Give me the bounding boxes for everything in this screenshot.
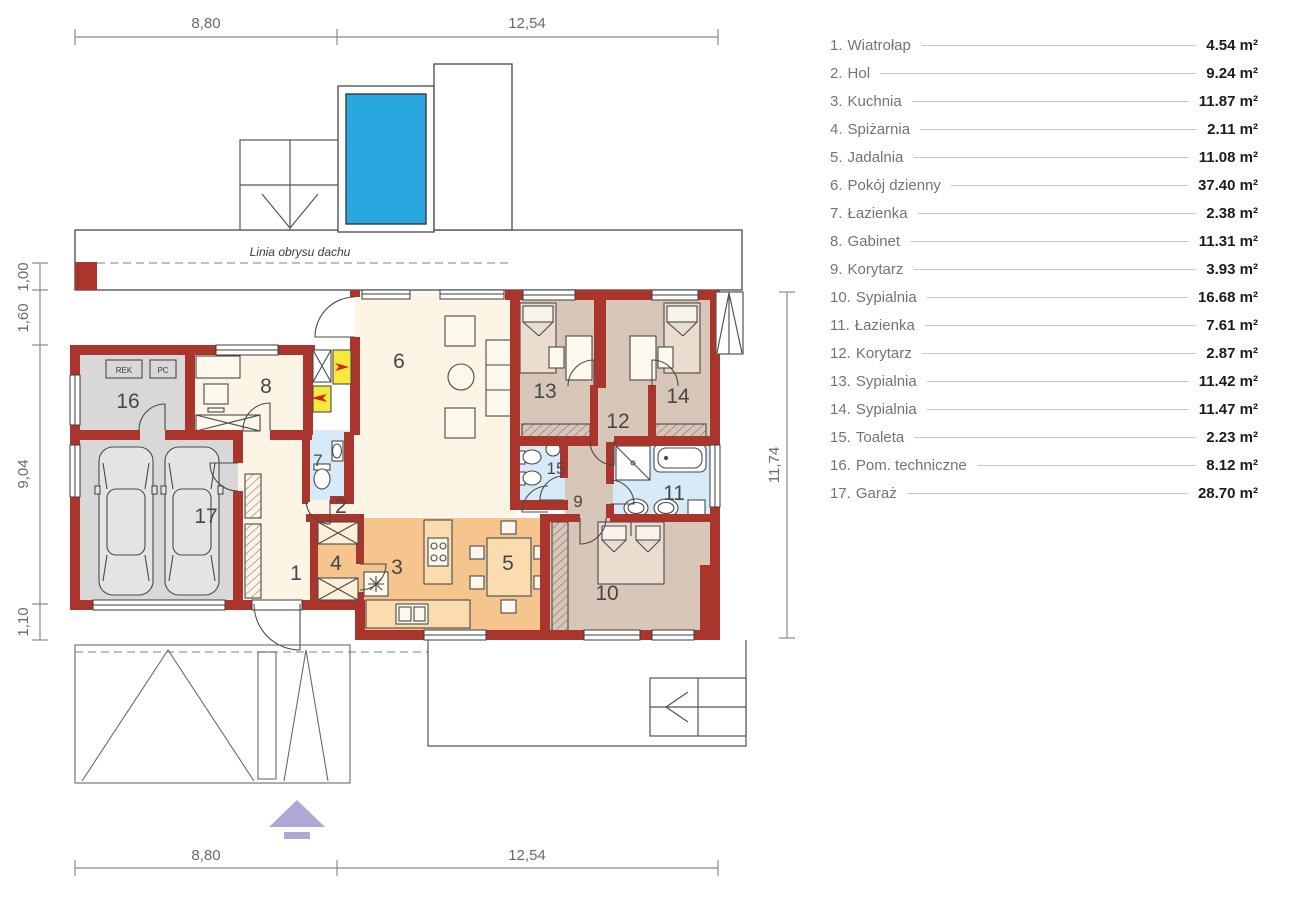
window-icon [216, 345, 278, 355]
legend-room-area: 2.87 m² [1206, 345, 1258, 362]
washer-icon [688, 500, 705, 515]
legend-room-name: Sypialnia [856, 289, 917, 306]
legend-room-name: Korytarz [848, 261, 904, 278]
legend-room-area: 11.42 m² [1199, 373, 1258, 390]
legend-row: 10.Sypialnia16.68 m² [830, 283, 1258, 311]
legend-room-area: 4.54 m² [1206, 37, 1258, 54]
legend-room-area: 9.24 m² [1206, 65, 1258, 82]
legend-room-name: Sypialnia [856, 373, 917, 390]
legend-room-name: Wiatrołap [848, 37, 911, 54]
legend-room-number: 3. [830, 93, 843, 110]
svg-text:PC: PC [157, 366, 168, 375]
legend-row: 16.Pom. techniczne8.12 m² [830, 451, 1258, 479]
dimension-bottom: 8,80 12,54 [75, 847, 718, 876]
floor-plan-page: 8,80 12,54 8,80 12,54 1,00 1,60 9,04 1,1… [0, 0, 1300, 900]
legend-row: 9.Korytarz3.93 m² [830, 255, 1258, 283]
legend-room-name: Jadalnia [848, 149, 904, 166]
legend-row: 12.Korytarz2.87 m² [830, 339, 1258, 367]
legend-room-area: 11.47 m² [1199, 401, 1258, 418]
window-icon [652, 290, 698, 300]
legend-room-area: 2.11 m² [1207, 121, 1258, 138]
car-icon [95, 447, 157, 595]
legend-leader-line [927, 297, 1188, 298]
legend-room-number: 6. [830, 177, 843, 194]
room-label-2: 2 [335, 495, 347, 518]
legend-room-name: Hol [848, 65, 871, 82]
legend-room-name: Łazienka [855, 317, 915, 334]
dim-bottom-left: 8,80 [191, 847, 220, 864]
legend-room-number: 5. [830, 149, 843, 166]
legend-leader-line [910, 241, 1189, 242]
legend-row: 15.Toaleta2.23 m² [830, 423, 1258, 451]
room-label-7: 7 [313, 451, 322, 470]
legend-room-area: 7.61 m² [1206, 317, 1258, 334]
legend-room-number: 14. [830, 401, 851, 418]
legend-room-name: Pokój dzienny [848, 177, 941, 194]
legend-leader-line [922, 353, 1197, 354]
room-label-17: 17 [194, 505, 217, 528]
legend-row: 2.Hol9.24 m² [830, 59, 1258, 87]
legend-room-area: 11.08 m² [1199, 149, 1258, 166]
pergola-grid-icon [240, 140, 340, 230]
dimension-right: 11,74 [766, 292, 795, 638]
window-icon [362, 290, 410, 299]
legend-room-number: 9. [830, 261, 843, 278]
legend-row: 13.Sypialnia11.42 m² [830, 367, 1258, 395]
entry-door-arc [254, 604, 300, 650]
room-label-14: 14 [666, 385, 690, 408]
legend-room-name: Gabinet [848, 233, 901, 250]
legend-leader-line [913, 157, 1188, 158]
legend-room-area: 11.87 m² [1199, 93, 1258, 110]
legend-leader-line [914, 437, 1196, 438]
legend-row: 3.Kuchnia11.87 m² [830, 87, 1258, 115]
legend-row: 14.Sypialnia11.47 m² [830, 395, 1258, 423]
wardrobe-icon [196, 415, 260, 431]
legend-row: 17.Garaż28.70 m² [830, 479, 1258, 507]
legend-room-name: Kuchnia [848, 93, 902, 110]
legend-leader-line [920, 129, 1197, 130]
legend-room-area: 28.70 m² [1198, 485, 1258, 502]
legend-room-name: Korytarz [856, 345, 912, 362]
window-icon [70, 375, 80, 425]
dim-top-left: 8,80 [191, 15, 220, 32]
kitchen-island [424, 520, 452, 584]
window-icon [710, 445, 720, 507]
room-label-13: 13 [533, 380, 556, 403]
kitchen-counter [366, 600, 470, 628]
legend-room-number: 1. [830, 37, 843, 54]
room-label-16: 16 [116, 390, 139, 413]
dim-left-2: 1,60 [15, 303, 32, 332]
window-icon [584, 630, 640, 640]
shower-icon [616, 446, 650, 480]
bed-icon [598, 522, 664, 584]
entrance-arrow-icon [269, 800, 325, 839]
legend-room-area: 2.38 m² [1206, 205, 1258, 222]
terrace [75, 64, 742, 290]
rek-box: REK [106, 360, 142, 378]
driveway [75, 645, 350, 783]
patio [428, 640, 746, 746]
garage-door-opening [93, 600, 225, 610]
dim-left-3: 9,04 [15, 459, 32, 488]
legend-row: 4.Spiżarnia2.11 m² [830, 115, 1258, 143]
legend-row: 7.Łazienka2.38 m² [830, 199, 1258, 227]
legend-leader-line [880, 73, 1196, 74]
legend-leader-line [927, 409, 1189, 410]
pool [338, 86, 434, 232]
legend-leader-line [927, 381, 1189, 382]
legend-room-number: 12. [830, 345, 851, 362]
floor-plan: 8,80 12,54 8,80 12,54 1,00 1,60 9,04 1,1… [0, 0, 810, 900]
legend-room-number: 7. [830, 205, 843, 222]
window-icon [440, 290, 504, 299]
dim-left-1: 1,00 [15, 262, 32, 291]
legend-room-area: 11.31 m² [1199, 233, 1258, 250]
room-label-10: 10 [595, 582, 618, 605]
dimension-top: 8,80 12,54 [75, 15, 718, 45]
dim-bottom-right: 12,54 [508, 847, 546, 864]
bathtub-icon [654, 444, 706, 472]
terrace-door-arc [315, 297, 355, 337]
legend-room-number: 15. [830, 429, 851, 446]
patio-grid-icon [650, 678, 746, 736]
exterior-stairs [716, 292, 743, 354]
room-label-4: 4 [330, 552, 342, 575]
legend-room-name: Toaleta [856, 429, 904, 446]
room-legend: 1.Wiatrołap4.54 m² 2.Hol9.24 m² 3.Kuchni… [830, 31, 1258, 507]
window-icon [424, 630, 486, 640]
legend-leader-line [913, 269, 1196, 270]
legend-room-number: 13. [830, 373, 851, 390]
legend-room-name: Pom. techniczne [856, 457, 967, 474]
legend-row: 6.Pokój dzienny37.40 m² [830, 171, 1258, 199]
room-label-6: 6 [393, 350, 405, 373]
legend-leader-line [907, 493, 1188, 494]
legend-room-number: 4. [830, 121, 843, 138]
svg-text:REK: REK [116, 366, 133, 375]
room-label-8: 8 [260, 375, 272, 398]
legend-room-number: 2. [830, 65, 843, 82]
legend-room-area: 3.93 m² [1206, 261, 1258, 278]
legend-room-number: 8. [830, 233, 843, 250]
window-icon [652, 630, 694, 640]
pc-box: PC [150, 360, 176, 378]
legend-room-name: Spiżarnia [848, 121, 911, 138]
room-label-5: 5 [502, 552, 514, 575]
window-icon [523, 290, 575, 300]
legend-room-number: 11. [830, 317, 850, 334]
dim-left-4: 1,10 [15, 607, 32, 636]
legend-room-area: 37.40 m² [1198, 177, 1258, 194]
legend-room-number: 16. [830, 457, 851, 474]
room-label-9: 9 [573, 492, 582, 511]
terrace-step [434, 64, 512, 230]
legend-room-number: 17. [830, 485, 851, 502]
legend-row: 5.Jadalnia11.08 m² [830, 143, 1258, 171]
legend-room-number: 10. [830, 289, 851, 306]
floor-plan-svg: 8,80 12,54 8,80 12,54 1,00 1,60 9,04 1,1… [0, 0, 810, 900]
legend-leader-line [918, 213, 1197, 214]
dim-top-right: 12,54 [508, 15, 546, 32]
legend-row: 11.Łazienka7.61 m² [830, 311, 1258, 339]
window-icon [70, 445, 80, 497]
legend-room-name: Sypialnia [856, 401, 917, 418]
room-label-11: 11 [663, 482, 685, 505]
legend-room-area: 8.12 m² [1206, 457, 1258, 474]
legend-leader-line [951, 185, 1188, 186]
room-9-floor [565, 442, 613, 518]
dimension-left: 1,00 1,60 9,04 1,10 [15, 262, 48, 640]
legend-leader-line [977, 465, 1197, 466]
roof-support-block [75, 262, 97, 290]
dim-right-1: 11,74 [766, 447, 783, 483]
legend-room-name: Łazienka [848, 205, 908, 222]
legend-leader-line [921, 45, 1196, 46]
entry-door-opening [252, 600, 302, 610]
vent-column [311, 350, 351, 412]
room-label-1: 1 [290, 562, 302, 585]
legend-leader-line [925, 325, 1197, 326]
legend-room-area: 16.68 m² [1198, 289, 1258, 306]
legend-leader-line [912, 101, 1189, 102]
legend-row: 1.Wiatrołap4.54 m² [830, 31, 1258, 59]
legend-room-name: Garaż [856, 485, 897, 502]
room-label-12: 12 [606, 410, 629, 433]
legend-row: 8.Gabinet11.31 m² [830, 227, 1258, 255]
legend-room-area: 2.23 m² [1206, 429, 1258, 446]
roof-outline-label: Linia obrysu dachu [250, 245, 351, 259]
room-label-15: 15 [547, 459, 566, 478]
room-label-3: 3 [391, 556, 403, 579]
